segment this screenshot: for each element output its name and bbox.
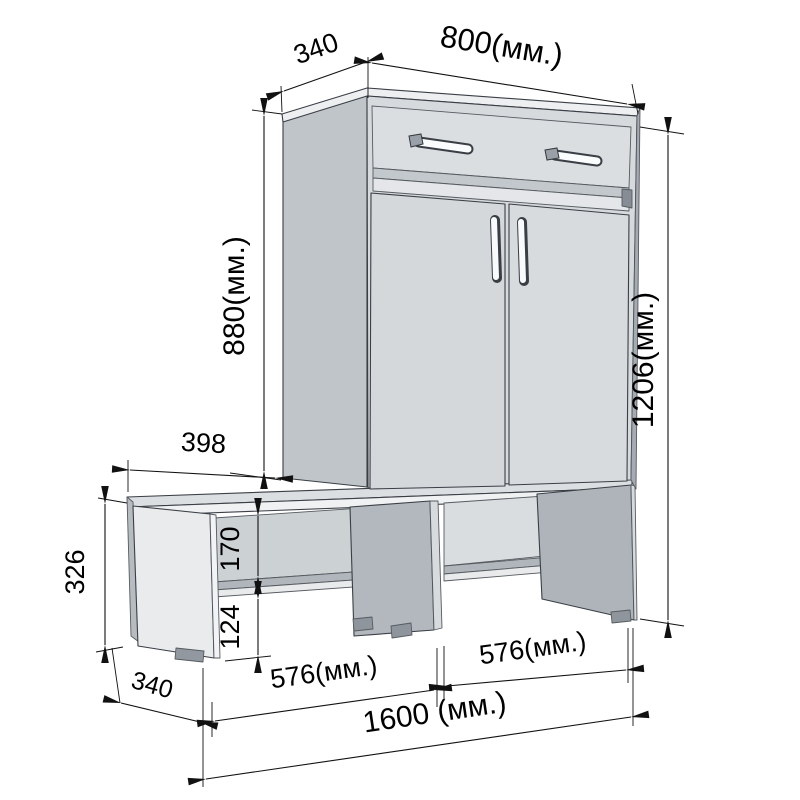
- door-left: [370, 193, 505, 489]
- middle-rail-end-cap: [622, 189, 632, 208]
- furniture-dimension-drawing: 340 800(мм.) 880(мм.) 1206(мм.) 398 326 …: [0, 0, 800, 800]
- cabinet-left-side: [283, 95, 367, 487]
- dim-line-top-depth: [284, 62, 366, 91]
- dim-label-total-width: 1600 (мм.): [361, 686, 509, 740]
- cabinet: [282, 88, 640, 489]
- dim-label-shelf-opening-height: 170: [215, 526, 245, 571]
- dim-line-right-compartment: [447, 670, 626, 686]
- door-handle-left: [494, 220, 497, 278]
- door-handle-right: [521, 222, 524, 281]
- bench-right-panel: [537, 485, 634, 620]
- dim-label-total-height: 1206(мм.): [627, 292, 660, 428]
- dim-label-under-shelf-height: 124: [215, 604, 245, 649]
- dim-label-cabinet-width: 800(мм.): [438, 18, 566, 72]
- bench-middle-divider: [350, 501, 434, 636]
- dim-label-bench-height: 326: [60, 549, 90, 594]
- bench-foot-left: [175, 648, 204, 662]
- dim-label-left-compartment: 576(мм.): [268, 650, 379, 695]
- dim-label-cabinet-height: 880(мм.): [218, 236, 251, 356]
- bench-foot-middle-back: [353, 617, 373, 631]
- dim-label-top-depth: 340: [290, 27, 342, 70]
- right-compartment-back: [444, 496, 545, 566]
- dim-label-bench-depth: 340: [128, 666, 176, 704]
- bench-left-panel: [133, 506, 214, 658]
- dim-label-right-compartment: 576(мм.): [477, 626, 588, 671]
- dim-line-bench-left-offset: [130, 470, 275, 478]
- dim-label-bench-left-offset: 398: [180, 427, 227, 459]
- bench-foot-middle-front: [391, 623, 412, 638]
- bench-foot-right: [611, 610, 631, 623]
- blueprint-page: 340 800(мм.) 880(мм.) 1206(мм.) 398 326 …: [0, 0, 800, 800]
- drawer-handle-right-cap: [545, 148, 559, 160]
- dim-line-bench-depth: [121, 703, 200, 722]
